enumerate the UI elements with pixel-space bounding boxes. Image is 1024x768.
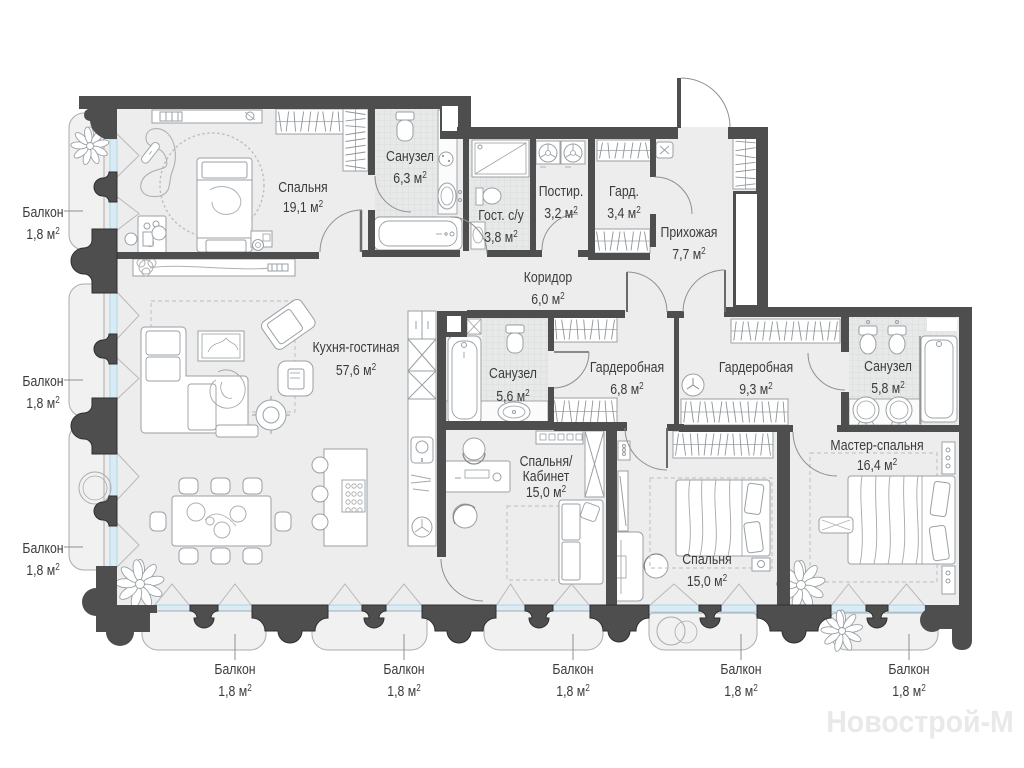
svg-text:1,8 м2: 1,8 м2 xyxy=(218,682,252,699)
svg-text:Балкон: Балкон xyxy=(383,661,424,677)
svg-text:5,6 м2: 5,6 м2 xyxy=(496,387,530,404)
svg-text:Санузел: Санузел xyxy=(864,358,912,374)
svg-text:1,8 м2: 1,8 м2 xyxy=(26,394,60,411)
svg-text:9,3 м2: 9,3 м2 xyxy=(739,380,773,397)
svg-text:1,8 м2: 1,8 м2 xyxy=(892,682,926,699)
svg-text:1,8 м2: 1,8 м2 xyxy=(26,561,60,578)
svg-text:7,7 м2: 7,7 м2 xyxy=(672,245,706,262)
svg-text:Спальня: Спальня xyxy=(278,179,327,195)
svg-text:3,2 м2: 3,2 м2 xyxy=(544,204,578,221)
svg-text:Коридор: Коридор xyxy=(524,269,573,285)
svg-text:1,8 м2: 1,8 м2 xyxy=(26,225,60,242)
svg-text:Спальня: Спальня xyxy=(682,551,731,567)
svg-text:Кабинет: Кабинет xyxy=(523,468,570,484)
svg-text:1,8 м2: 1,8 м2 xyxy=(724,682,758,699)
svg-text:Балкон: Балкон xyxy=(888,661,929,677)
svg-text:6,3 м2: 6,3 м2 xyxy=(393,169,427,186)
svg-text:Гардеробная: Гардеробная xyxy=(590,359,664,375)
svg-text:Санузел: Санузел xyxy=(489,365,537,381)
svg-text:Постир.: Постир. xyxy=(539,183,584,199)
svg-text:1,8 м2: 1,8 м2 xyxy=(387,682,421,699)
svg-text:Балкон: Балкон xyxy=(22,373,63,389)
svg-text:19,1 м2: 19,1 м2 xyxy=(283,198,323,215)
svg-text:Мастер-спальня: Мастер-спальня xyxy=(830,437,923,453)
svg-text:Гардеробная: Гардеробная xyxy=(719,359,793,375)
svg-text:15,0 м2: 15,0 м2 xyxy=(526,483,566,500)
svg-text:15,0 м2: 15,0 м2 xyxy=(687,572,727,589)
svg-text:6,0 м2: 6,0 м2 xyxy=(531,290,565,307)
svg-text:Кухня-гостиная: Кухня-гостиная xyxy=(313,339,400,355)
svg-text:3,8 м2: 3,8 м2 xyxy=(484,228,518,245)
svg-text:Балкон: Балкон xyxy=(22,540,63,556)
svg-text:Новострой-М: Новострой-М xyxy=(826,705,1014,739)
svg-text:1,8 м2: 1,8 м2 xyxy=(556,682,590,699)
svg-text:5,8 м2: 5,8 м2 xyxy=(871,379,905,396)
svg-text:16,4 м2: 16,4 м2 xyxy=(857,456,897,473)
svg-text:57,6 м2: 57,6 м2 xyxy=(336,361,376,378)
svg-text:6,8 м2: 6,8 м2 xyxy=(610,380,644,397)
svg-text:Балкон: Балкон xyxy=(214,661,255,677)
svg-text:3,4 м2: 3,4 м2 xyxy=(607,204,641,221)
svg-text:Балкон: Балкон xyxy=(720,661,761,677)
svg-text:Балкон: Балкон xyxy=(22,204,63,220)
svg-text:Спальня/: Спальня/ xyxy=(520,453,573,469)
svg-text:Гост. с/у: Гост. с/у xyxy=(478,207,524,223)
svg-text:Прихожая: Прихожая xyxy=(661,224,718,240)
svg-text:Санузел: Санузел xyxy=(386,148,434,164)
svg-text:Балкон: Балкон xyxy=(552,661,593,677)
svg-text:Гард.: Гард. xyxy=(609,183,639,199)
